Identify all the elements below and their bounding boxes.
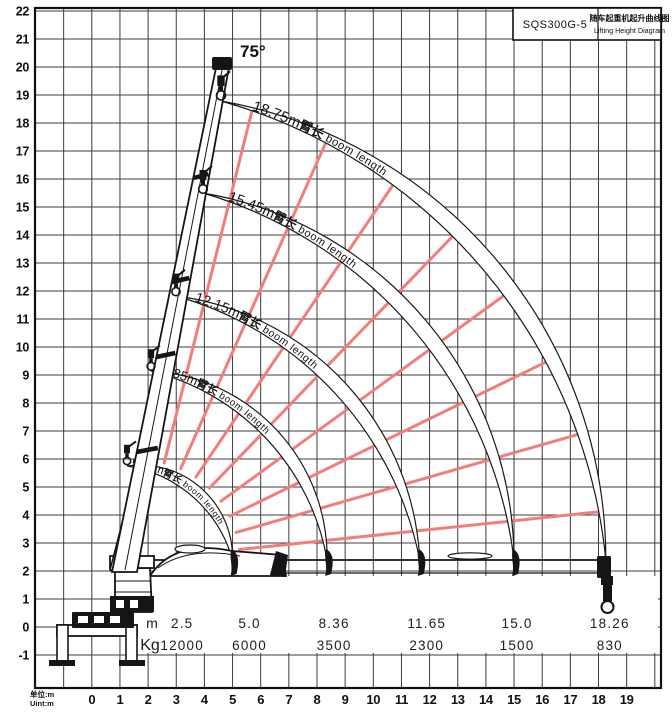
x-tick-label: 15 [507, 692, 521, 707]
boom-arc-label-path [176, 296, 420, 560]
table-outreach-value: 2.5 [171, 616, 193, 631]
boom-detail [175, 545, 205, 553]
y-tick-label: 10 [16, 341, 30, 355]
boom-arc [176, 296, 420, 560]
table-capacity-value: 12000 [160, 638, 204, 653]
x-tick-label: 11 [395, 692, 408, 707]
x-tick-label: 18 [592, 692, 606, 707]
y-tick-label: 1 [22, 593, 29, 607]
y-tick-label: 5 [22, 481, 29, 495]
x-tick-label: 8 [314, 692, 321, 707]
outrigger-foot-left [49, 660, 75, 666]
outrigger-leg-right [126, 625, 137, 661]
boom-tip-block [597, 556, 611, 578]
x-tick-label: 13 [451, 692, 465, 707]
hook-point-flag [418, 549, 426, 576]
table-outreach-value: 5.0 [238, 616, 260, 631]
y-tick-label: 2 [22, 565, 29, 579]
x-tick-label: 10 [366, 692, 380, 707]
y-tick-label: 11 [16, 313, 29, 327]
y-tick-label: -1 [18, 649, 29, 663]
unit-label-en: Uint:m [30, 699, 54, 708]
y-tick-label: 6 [22, 453, 29, 467]
y-tick-label: 21 [16, 33, 30, 47]
boom-arc-label: 12.15m臂长 boom length [193, 289, 320, 372]
y-tick-label: 14 [16, 229, 30, 243]
table-outreach-value: 11.65 [407, 616, 446, 631]
boom-arc-label: 8.85m臂长 boom length [161, 362, 272, 437]
table-outreach-value: 15.0 [502, 616, 533, 631]
x-tick-label: 0 [88, 692, 95, 707]
winch-slot [116, 600, 124, 608]
table-row-label-kg: Kg [140, 637, 160, 654]
x-tick-label: 7 [285, 692, 292, 707]
table-capacity-value: 1500 [500, 638, 535, 653]
table-outreach-value: 18.26 [590, 616, 630, 631]
x-tick-label: 4 [201, 692, 209, 707]
max-angle-label: 75° [240, 42, 266, 61]
boom-head [212, 57, 232, 70]
x-tick-label: 6 [257, 692, 264, 707]
y-tick-label: 8 [22, 397, 29, 411]
x-tick-label: 2 [145, 692, 152, 707]
boom-detail [448, 553, 492, 559]
x-tick-label: 14 [479, 692, 494, 707]
hook-block [173, 274, 180, 284]
hook-icon [123, 457, 130, 464]
x-tick-label: 17 [563, 692, 577, 707]
base-slot [78, 616, 88, 623]
outrigger-leg-left [57, 625, 68, 661]
y-tick-label: 12 [16, 285, 30, 299]
y-tick-label: 17 [16, 145, 30, 159]
diagram-canvas: 5.52m臂长 boom length8.85m臂长 boom length12… [0, 0, 672, 720]
hook-block [601, 576, 613, 585]
table-background [134, 576, 658, 653]
title-block: SQS300G-5 随车起重机起升曲线图 Lifting Height Diag… [513, 8, 670, 40]
y-tick-label: 13 [16, 257, 30, 271]
table-capacity-value: 2300 [409, 638, 444, 653]
hook-point-flag [325, 549, 333, 576]
y-tick-label: 3 [22, 537, 29, 551]
hook-block [148, 349, 154, 358]
unit-label-cn: 单位:m [30, 689, 54, 699]
winch-slot [130, 600, 138, 608]
x-tick-label: 19 [620, 692, 634, 707]
table-capacity-value: 3500 [317, 638, 352, 653]
y-tick-label: 9 [22, 369, 29, 383]
hook-bracket [129, 441, 136, 446]
y-tick-label: 4 [22, 509, 29, 523]
table-capacity-value: 830 [597, 638, 623, 653]
table-outreach-value: 8.36 [319, 616, 350, 631]
x-tick-label: 12 [423, 692, 437, 707]
boom-arc-label: 15.45m臂长 boom length [226, 189, 359, 271]
y-tick-label: 16 [16, 173, 30, 187]
hook-point-flag [512, 549, 520, 576]
diagram-title-cn: 随车起重机起升曲线图 [590, 13, 670, 23]
boom-position-line [209, 228, 460, 488]
x-tick-label: 3 [173, 692, 180, 707]
diagram-title-en: Lifting Height Diagram [594, 26, 665, 35]
table-row-label-m: m [146, 615, 158, 631]
hook-block [124, 445, 130, 454]
base-slot [110, 616, 120, 623]
x-tick-label: 16 [535, 692, 549, 707]
y-tick-label: 22 [16, 5, 30, 19]
model-number: SQS300G-5 [523, 19, 587, 31]
lifting-height-diagram: 5.52m臂长 boom length8.85m臂长 boom length12… [0, 0, 672, 720]
table-capacity-value: 6000 [232, 638, 267, 653]
boom-raised [112, 63, 229, 572]
hook-block [200, 170, 207, 180]
boom-root [150, 548, 286, 576]
y-tick-label: 15 [16, 201, 30, 215]
x-tick-label: 5 [229, 692, 236, 707]
y-tick-label: 20 [16, 61, 30, 75]
outrigger-foot-right [119, 660, 145, 666]
table-band [134, 576, 658, 653]
boom-arc-label: 18.75m臂长 boom length [250, 98, 389, 179]
x-tick-label: 1 [116, 692, 123, 707]
y-tick-label: 0 [22, 621, 29, 635]
y-tick-label: 19 [16, 89, 30, 103]
y-tick-label: 18 [16, 117, 30, 131]
base-slot [94, 616, 104, 623]
hook-block [603, 585, 612, 601]
x-tick-label: 9 [342, 692, 349, 707]
hook-block [217, 75, 224, 86]
y-tick-label: 7 [22, 425, 29, 439]
